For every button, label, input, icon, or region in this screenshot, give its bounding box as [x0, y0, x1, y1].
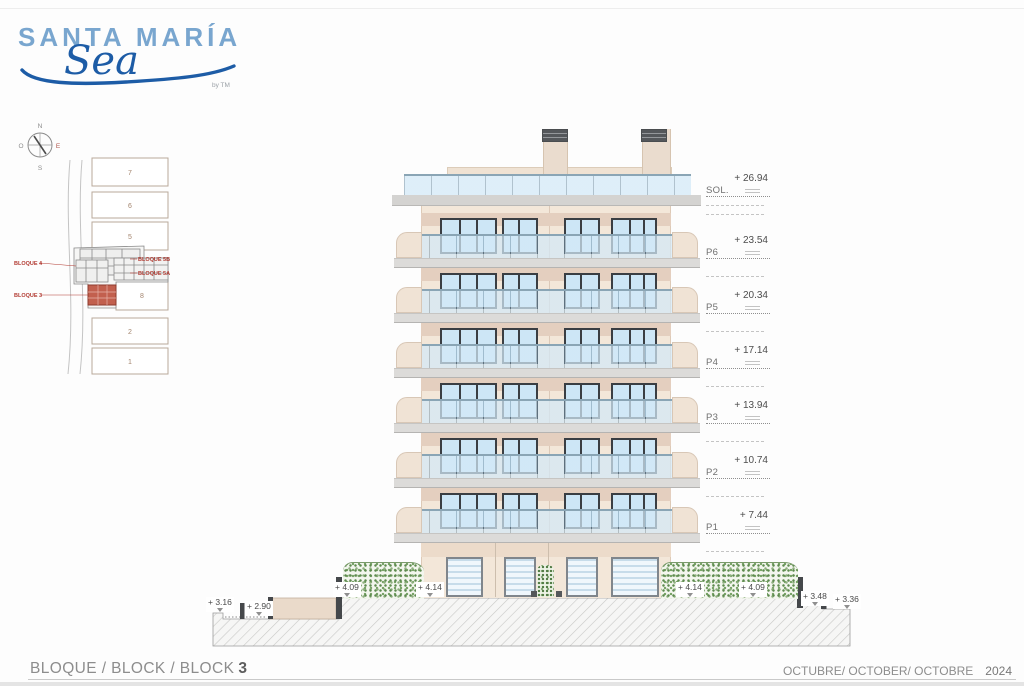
datum-dash [706, 386, 764, 387]
datum-marker-icon [344, 593, 350, 597]
balcony-glass-railing [402, 344, 692, 368]
balcony-end-cap [672, 287, 698, 313]
ground-level-mark: + 3.16 [206, 597, 234, 612]
balcony-glass-railing [402, 289, 692, 313]
ground-level-mark: + 2.90 [245, 601, 273, 616]
ground-level-mark: + 3.48 [801, 591, 829, 606]
datum-marker-icon [750, 593, 756, 597]
balcony-glass-railing [402, 509, 692, 533]
balcony-glass-railing [402, 399, 692, 423]
level-label-p3: P3+ 13.94 [706, 403, 770, 424]
floor-p6 [394, 218, 700, 268]
planter-shrub [537, 565, 554, 597]
floor-p5 [394, 273, 700, 323]
plant-pot [531, 591, 537, 597]
datum-dash [706, 496, 764, 497]
micro-caption [745, 360, 760, 365]
datum-marker-icon [812, 602, 818, 606]
louvered-door [446, 557, 483, 597]
ground-level-mark: + 4.14 [416, 582, 444, 597]
level-label-sol: SOL.+ 26.94 [706, 176, 770, 197]
level-label-p4: P4+ 17.14 [706, 348, 770, 369]
louvered-door [566, 557, 598, 597]
chimney [642, 129, 671, 174]
chimney-cap [542, 129, 568, 142]
datum-dash [706, 205, 764, 206]
chimney-cap [641, 129, 667, 142]
balcony-slab [394, 258, 700, 268]
micro-caption [745, 250, 760, 255]
louvered-door [611, 557, 659, 597]
drawing-sheet: SANTA MARÍA Sea by TM N S E O [0, 0, 1024, 686]
level-label-p6: P6+ 23.54 [706, 238, 770, 259]
balcony-end-cap [396, 452, 422, 478]
datum-marker-icon [687, 593, 693, 597]
datum-marker-icon [217, 608, 223, 612]
solarium-glass-railing [404, 174, 691, 196]
floor-p3 [394, 383, 700, 433]
balcony-slab [394, 478, 700, 488]
level-label-p5: P5+ 20.34 [706, 293, 770, 314]
floor-p2 [394, 438, 700, 488]
balcony-glass-railing [402, 454, 692, 478]
datum-dash [706, 276, 764, 277]
balcony-slab [394, 313, 700, 323]
balcony-end-cap [672, 507, 698, 533]
floor-p4 [394, 328, 700, 378]
datum-marker-icon [844, 605, 850, 609]
micro-caption [745, 188, 760, 193]
balcony-end-cap [672, 342, 698, 368]
roof-fascia [392, 195, 701, 206]
balcony-end-cap [396, 232, 422, 258]
micro-caption [745, 415, 760, 420]
ground-floor-band [421, 543, 671, 557]
balcony-slab [394, 423, 700, 433]
datum-dash [706, 441, 764, 442]
balcony-end-cap [672, 397, 698, 423]
level-label-p1: P1+ 7.44 [706, 513, 770, 534]
datum-dash [706, 214, 764, 215]
ground-level-mark: + 4.09 [333, 582, 361, 597]
balcony-end-cap [672, 232, 698, 258]
ground-level-mark: + 4.14 [676, 582, 704, 597]
ground-level-mark: + 4.09 [739, 582, 767, 597]
balcony-end-cap [396, 287, 422, 313]
balcony-end-cap [396, 507, 422, 533]
balcony-slab [394, 533, 700, 543]
balcony-end-cap [396, 342, 422, 368]
balcony-end-cap [672, 452, 698, 478]
balcony-slab [394, 368, 700, 378]
level-label-p2: P2+ 10.74 [706, 458, 770, 479]
balcony-glass-railing [402, 234, 692, 258]
micro-caption [745, 525, 760, 530]
plant-pot [556, 591, 562, 597]
building-elevation [0, 0, 1024, 686]
balcony-end-cap [396, 397, 422, 423]
micro-caption [745, 470, 760, 475]
wall-joint [495, 543, 496, 597]
floor-p1 [394, 493, 700, 543]
datum-dash [706, 331, 764, 332]
datum-marker-icon [256, 612, 262, 616]
chimney [543, 129, 568, 174]
datum-marker-icon [427, 593, 433, 597]
micro-caption [745, 305, 760, 310]
ground-level-mark: + 3.36 [833, 594, 861, 609]
datum-dash [706, 551, 764, 552]
